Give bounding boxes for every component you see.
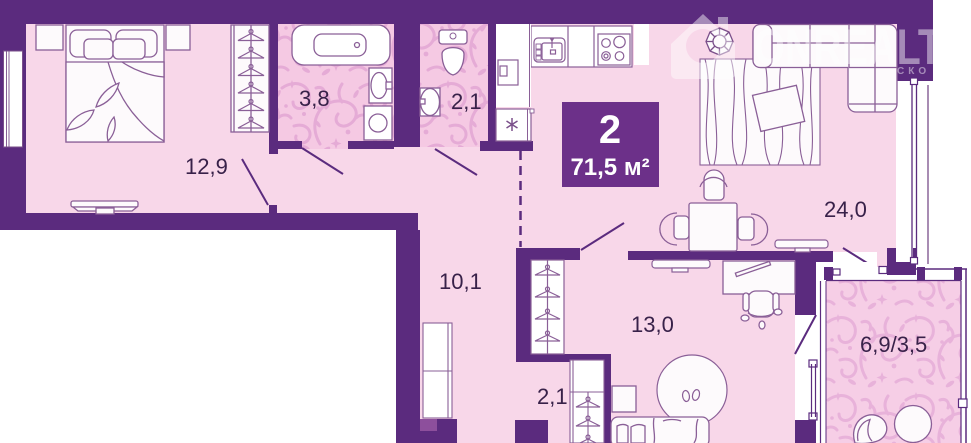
svg-text:СКО: СКО [897, 66, 930, 77]
svg-text:12,9: 12,9 [185, 154, 228, 179]
svg-text:2,1: 2,1 [537, 384, 568, 409]
svg-text:71,5 м²: 71,5 м² [570, 154, 649, 181]
svg-text:13,0: 13,0 [631, 312, 674, 337]
svg-text:6,9/3,5: 6,9/3,5 [860, 332, 927, 357]
svg-text:2,1: 2,1 [451, 89, 482, 114]
svg-text:3,8: 3,8 [299, 86, 330, 111]
svg-text:2: 2 [599, 108, 621, 152]
svg-text:10,1: 10,1 [439, 269, 482, 294]
svg-text:24,0: 24,0 [824, 197, 867, 222]
